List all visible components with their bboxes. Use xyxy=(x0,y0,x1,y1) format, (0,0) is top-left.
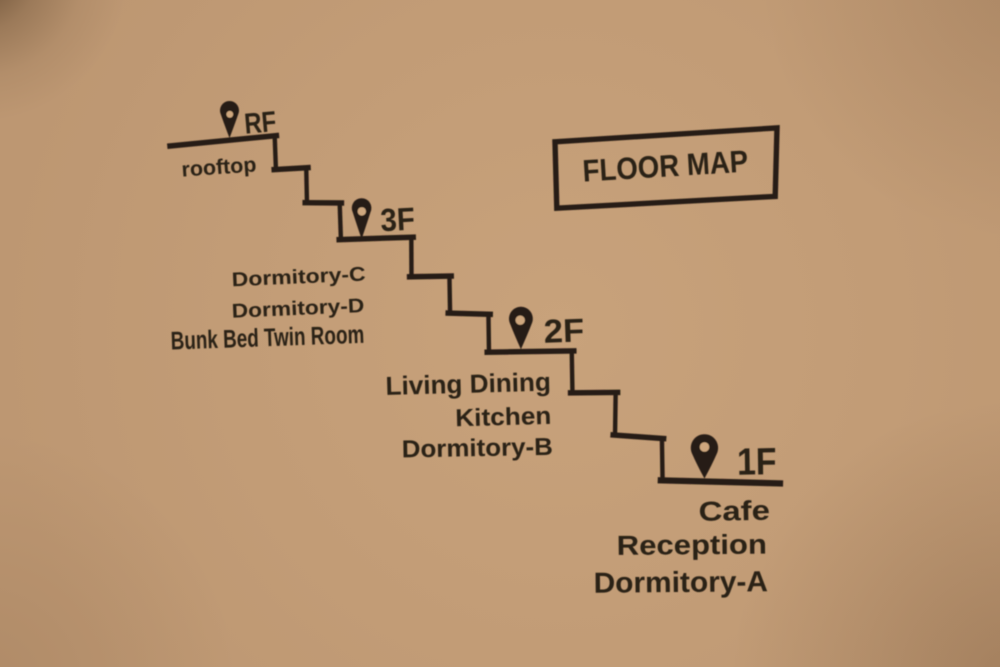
svg-text:Dormitory-A: Dormitory-A xyxy=(593,566,768,600)
svg-text:1F: 1F xyxy=(737,441,777,484)
svg-text:Reception: Reception xyxy=(617,529,767,561)
svg-text:RF: RF xyxy=(243,106,278,141)
svg-text:3F: 3F xyxy=(379,201,415,239)
svg-text:2F: 2F xyxy=(543,311,585,349)
svg-text:Kitchen: Kitchen xyxy=(455,403,552,433)
svg-text:Dormitory-B: Dormitory-B xyxy=(402,434,554,464)
svg-text:Cafe: Cafe xyxy=(698,495,770,527)
svg-text:Living Dining: Living Dining xyxy=(385,367,551,401)
